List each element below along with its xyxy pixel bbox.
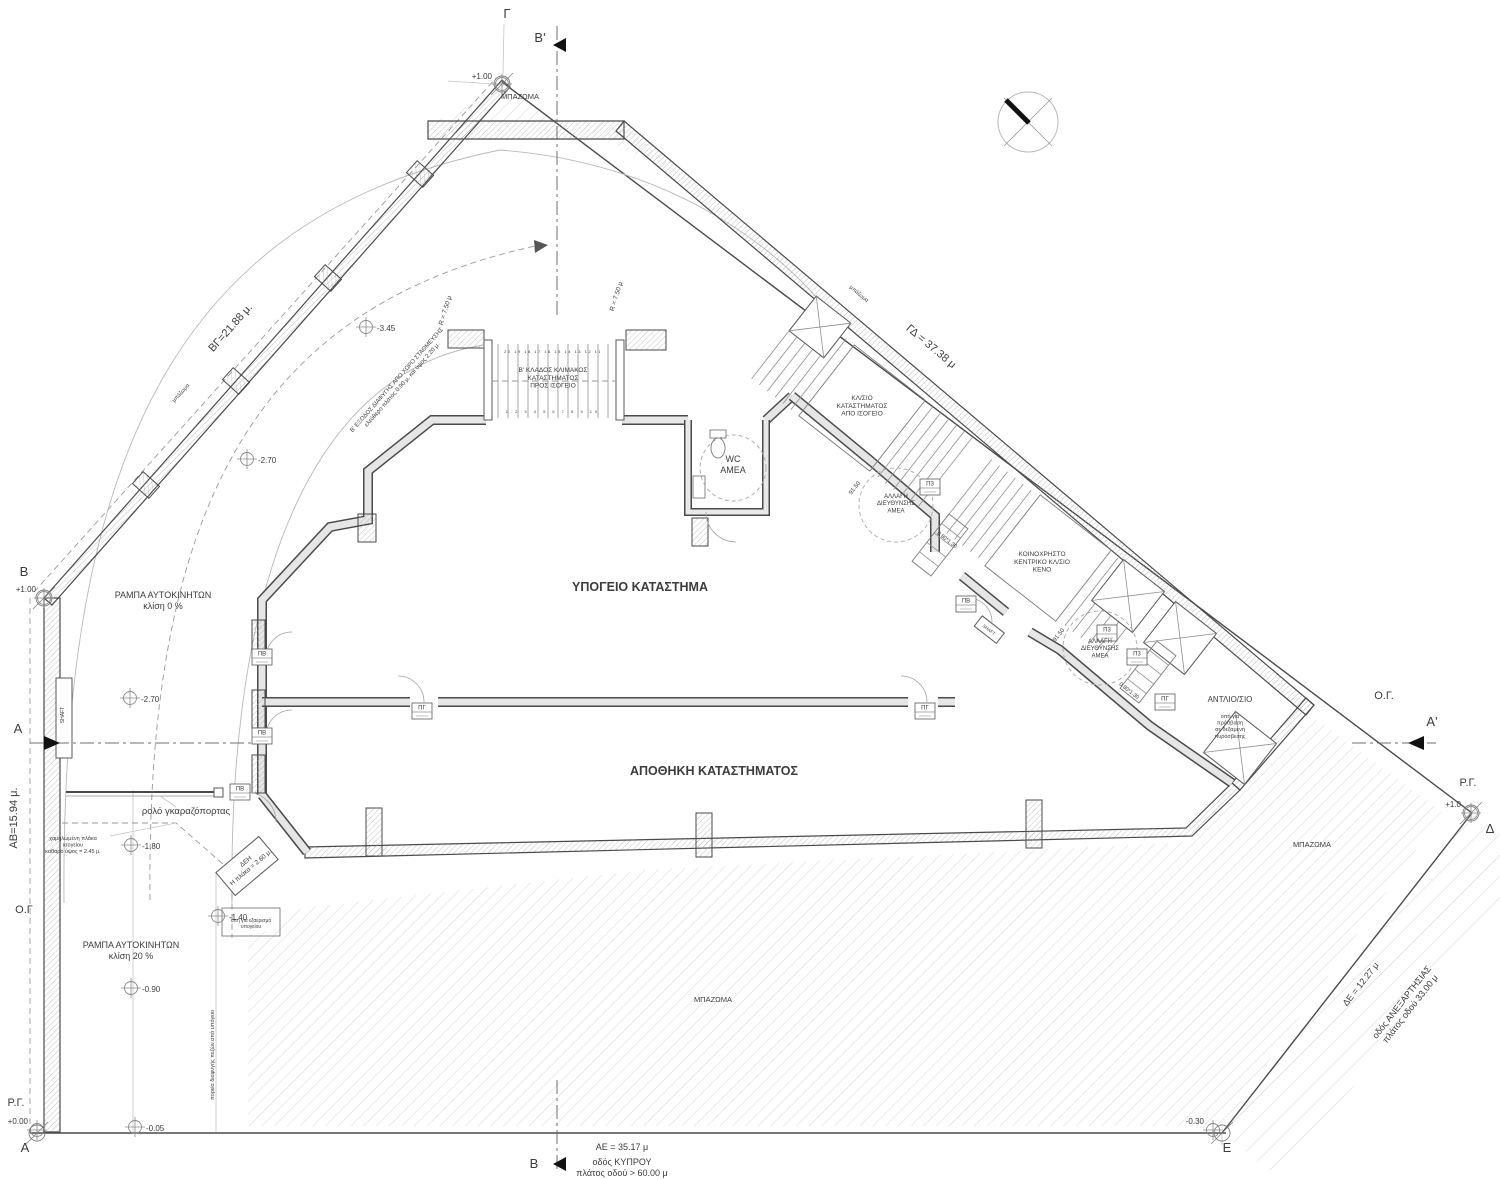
point-e-label: Ε <box>1223 1140 1232 1155</box>
tag-p3-1-label: Π3 <box>926 482 934 488</box>
pilaster <box>252 620 265 650</box>
tag-p3-2-label: Π3 <box>1103 628 1111 634</box>
pilaster <box>252 755 265 793</box>
building-line-left: Ο.Γ <box>15 904 33 916</box>
column <box>366 808 382 856</box>
tag-pb-3-label: ΠΒ <box>236 787 244 793</box>
tag-p3-3-label: Π3 <box>1133 652 1141 658</box>
pilaster <box>252 690 265 728</box>
floor-plan-sheet: ΑΑ'Β'Β +1.00+1.00-2.70-3.45-2.70-1.80-1.… <box>0 0 1500 1180</box>
note-shaft-left: SHAFT <box>60 707 66 723</box>
tag-pg-3: ΠΓ <box>1155 694 1175 710</box>
tag-pb-1: ΠΒ <box>252 649 272 665</box>
elev-gamma-value: +1.00 <box>472 72 493 81</box>
ramp-outer-curve <box>64 150 500 903</box>
stair-communal: ΚΟΙΝΟΧΡΗΣΤΟΚΕΝΤΡΙΚΟ ΚΛ/ΣΙΟΚΕΝΟ <box>1014 551 1070 574</box>
area-fill-top: ΜΠΑΖΩΜΑ <box>501 92 539 101</box>
radius-750-2: R = 7.50 μ <box>609 281 625 312</box>
elev-005-value: -0.05 <box>146 1124 165 1133</box>
area-fill-small-left: μπάζωμα <box>171 382 192 404</box>
level-9150-2: 91.50 <box>1052 627 1066 643</box>
section-b-top-label: Β' <box>534 30 545 45</box>
room-pump: ΑΝΤΛΙΟ/ΣΙΟ <box>1208 695 1253 704</box>
garage-roller-end <box>214 788 223 797</box>
elev-000-value: +0.00 <box>8 1117 29 1126</box>
tag-p3-1: Π3 <box>920 479 940 495</box>
toilet-icon <box>711 438 725 458</box>
tag-pb-4: ΠΒ <box>956 596 976 612</box>
tag-pb-3: ΠΒ <box>230 784 250 800</box>
section-b-bottom-label: Β <box>530 1156 539 1171</box>
ramp-slope-20: ΡΑΜΠΑ ΑΥΤΟΚΙΝΗΤΩΝκλίση 20 % <box>83 940 180 961</box>
point-b-label: Β <box>20 564 29 579</box>
area-fill-bottom: ΜΠΑΖΩΜΑ <box>694 995 732 1004</box>
stair-from-ground: ΚΛ/ΣΙΟΚΑΤΑΣΤΗΜΑΤΟΣΑΠΟ ΙΣΟΓΕΙΟ <box>837 395 888 418</box>
point-gamma-label: Γ <box>503 6 510 21</box>
column <box>448 330 484 348</box>
note-vent-opening: οπή για εξαερισμόυπογείου <box>231 917 272 930</box>
amea-turn-2: ΑΛΛΑΓΗΔΙΕΥΘΥΝΣΗΣΑΜΕΑ <box>1081 639 1119 659</box>
wall-northeast-gd <box>616 121 1314 715</box>
room-store-storage: ΑΠΟΘΗΚΗ ΚΑΤΑΣΤΗΜΑΤΟΣ <box>630 764 799 778</box>
elev-270-b-value: -2.70 <box>141 695 160 704</box>
ramp-inner-curve <box>232 344 490 903</box>
floor-plan-drawing: ΑΑ'Β'Β +1.00+1.00-2.70-3.45-2.70-1.80-1.… <box>0 0 1500 1180</box>
tag-p3-3: Π3 <box>1127 649 1147 665</box>
elev-b-value: +1.00 <box>16 585 37 594</box>
tag-pg-1-label: ΠΓ <box>418 706 426 712</box>
regulation-line-right: Ρ.Γ. <box>1460 777 1477 789</box>
ramp-slope-0: ΡΑΜΠΑ ΑΥΤΟΚΙΝΗΤΩΝκλίση 0 % <box>115 590 212 611</box>
north-arrow <box>998 92 1058 152</box>
building-line-right: Ο.Γ. <box>1374 690 1394 702</box>
hatch-zones <box>248 90 1500 1179</box>
regulation-line-left: Ρ.Γ. <box>8 1097 25 1109</box>
tag-pg-2-label: ΠΓ <box>921 706 929 712</box>
stair-wall-right <box>616 340 624 420</box>
elev-030-value: -0.30 <box>1186 1117 1205 1126</box>
tag-pb-2-label: ΠΒ <box>258 731 266 737</box>
interior-walls <box>262 396 1232 852</box>
room-wc-amea: WCΑΜΕΑ <box>720 454 746 475</box>
elev-090-value: -0.90 <box>142 985 161 994</box>
dim-ab: ΑΒ=15.94 μ. <box>8 787 20 848</box>
tag-pg-3-label: ΠΓ <box>1161 697 1169 703</box>
column <box>1026 800 1042 848</box>
hatch-bottom-area <box>248 714 1442 1126</box>
column <box>696 813 712 857</box>
tag-pg-2: ΠΓ <box>915 703 935 719</box>
elev-180: -1.80 <box>121 835 161 855</box>
treads-upper-numbers: 20 19 18 17 16 15 14 13 12 11 <box>504 349 602 354</box>
elev-005: -0.05 <box>125 1117 165 1137</box>
column <box>692 518 708 546</box>
area-fill-small-top: μπάζωμα <box>848 284 871 305</box>
dim-bg: ΒΓ=21.88 μ. <box>206 302 255 355</box>
point-delta-label: Δ <box>1486 821 1495 836</box>
note-escape-path: πορεία διαφυγής πεζών από υπόγειο <box>209 1010 216 1100</box>
elev-270-a: -2.70 <box>237 449 277 469</box>
column <box>626 330 666 350</box>
garage-roller-door: ρολό γκαραζόπορτας <box>142 806 231 817</box>
radius-750-1: R = 7.50 μ <box>438 295 454 326</box>
columns <box>132 161 1042 857</box>
elev-delta-value: +1.0 <box>1445 800 1461 809</box>
tag-pg-1: ΠΓ <box>412 703 432 719</box>
section-a-right-label: Α' <box>1426 714 1437 729</box>
elev-090: -0.90 <box>121 978 161 998</box>
leader <box>503 24 504 74</box>
point-a-label: Α <box>21 1140 30 1155</box>
elev-345-value: -3.45 <box>377 324 396 333</box>
elev-270-b: -2.70 <box>120 688 160 708</box>
dim-ae: ΑΕ = 35.17 μ <box>596 1142 648 1152</box>
room-basement-store: ΥΠΟΓΕΙΟ ΚΑΤΑΣΤΗΜΑ <box>572 580 708 594</box>
stair-wall-left <box>484 340 492 420</box>
ramp-direction-arrow <box>534 240 548 253</box>
sink-icon <box>693 476 705 498</box>
dim-gd: ΓΔ = 37.38 μ <box>904 322 959 371</box>
toilet-tank <box>710 430 726 438</box>
tag-pb-2: ΠΒ <box>252 728 272 744</box>
stair-b-branch: Β' ΚΛΑΔΟΣ ΚΛΙΜΑΚΟΣΚΑΤΑΣΤΗΜΑΤΟΣΠΡΟΣ ΙΣΟΓΕ… <box>519 367 588 390</box>
column <box>358 514 376 542</box>
wall-northwest-bg <box>44 80 510 605</box>
area-fill-right: ΜΠΑΖΩΜΑ <box>1293 840 1331 849</box>
leader <box>448 81 494 84</box>
door-arc <box>706 512 736 542</box>
shafts-and-lifts <box>56 296 1276 784</box>
wall-top <box>428 121 624 139</box>
road-kyprou: οδός ΚΥΠΡΟΥπλάτος οδού > 60.00 μ <box>576 1157 667 1178</box>
treads-lower-numbers: 1 2 3 4 5 6 7 8 9 10 <box>506 409 600 414</box>
leader <box>110 823 176 836</box>
elev-180-value: -1.80 <box>142 842 161 851</box>
door-swings <box>246 512 992 822</box>
setback-line-bg <box>34 78 496 592</box>
north-needle <box>1006 100 1029 123</box>
elev-270-a-value: -2.70 <box>258 456 277 465</box>
tag-pb-1-label: ΠΒ <box>258 652 266 658</box>
elev-345: -3.45 <box>356 317 396 337</box>
tag-pb-4-label: ΠΒ <box>962 599 970 605</box>
section-b-top: Β' <box>534 26 566 318</box>
section-a-left-label: Α <box>14 721 23 736</box>
